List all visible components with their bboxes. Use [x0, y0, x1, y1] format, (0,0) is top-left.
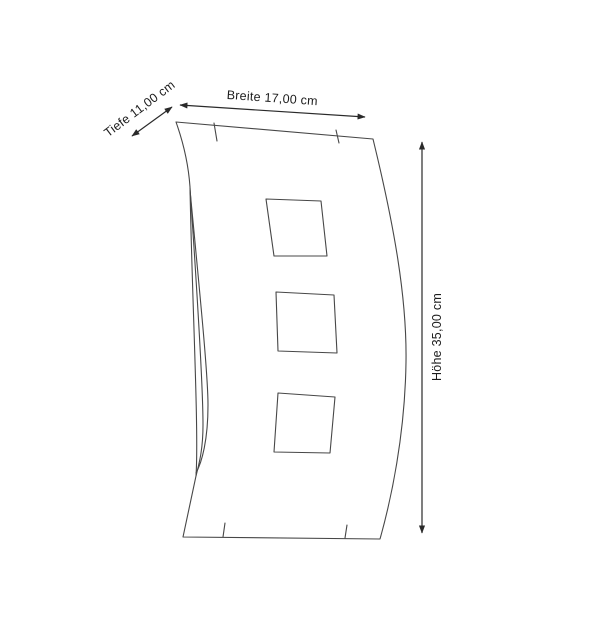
width-dimension-label: Breite 17,00 cm — [226, 88, 318, 108]
width-dimension-arrow — [180, 105, 365, 117]
height-dimension-label: Höhe 35,00 cm — [430, 293, 444, 381]
lamp-body-outline — [176, 122, 406, 539]
dimension-diagram: Breite 17,00 cm Tiefe 11,00 cm Höhe 35,0… — [0, 0, 600, 628]
diagram-canvas: Breite 17,00 cm Tiefe 11,00 cm Höhe 35,0… — [0, 0, 600, 628]
